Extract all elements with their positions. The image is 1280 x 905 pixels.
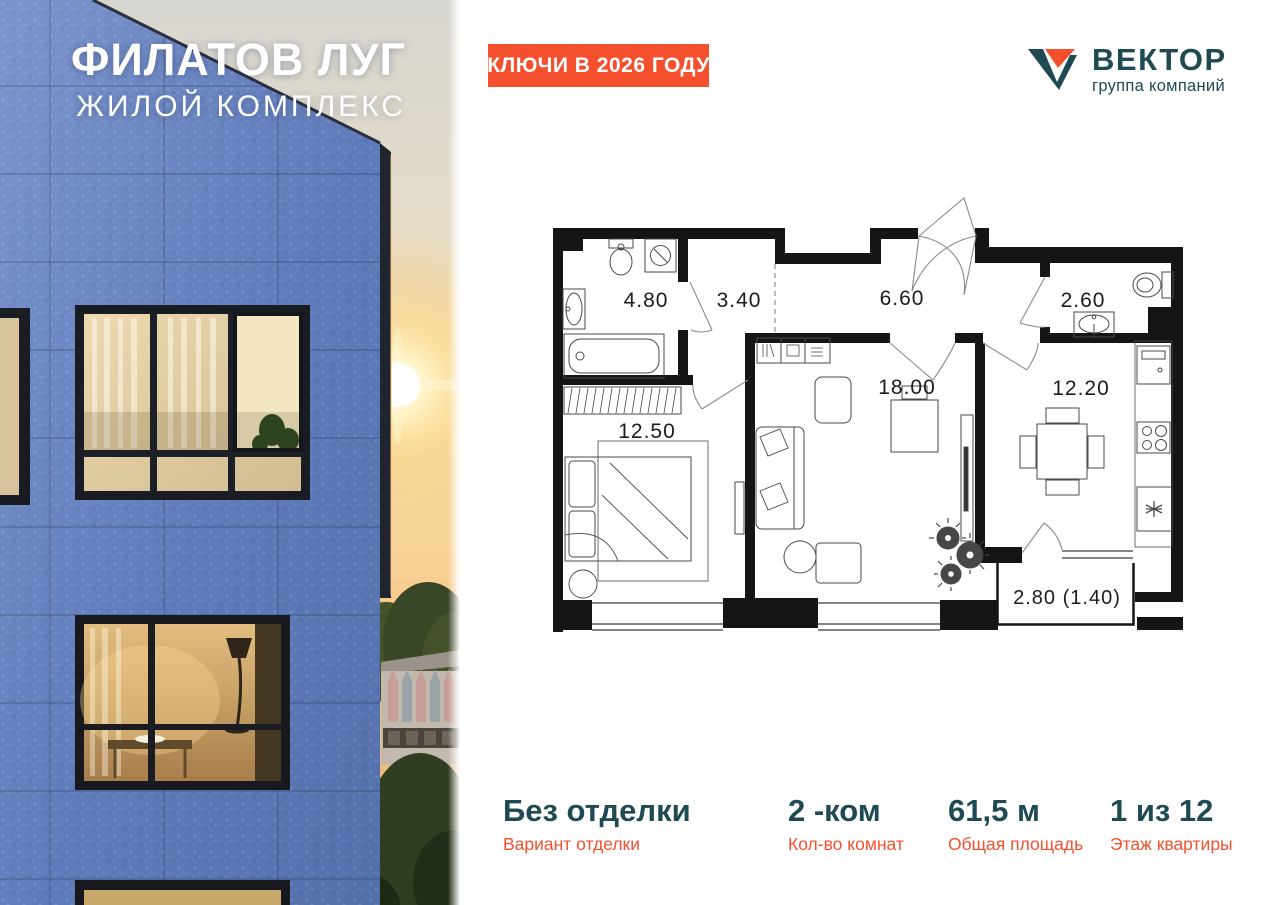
bedside-rug bbox=[569, 570, 597, 598]
complex-subtitle: ЖИЛОЙ КОМПЛЕКС bbox=[0, 90, 406, 124]
coffee-table-icon bbox=[784, 541, 816, 573]
building-photo-art bbox=[0, 0, 460, 905]
living-room-window bbox=[818, 603, 940, 630]
detail-area: 61,5 м Общая площадь bbox=[948, 795, 1083, 855]
detail-finishing: Без отделки Вариант отделки bbox=[503, 795, 691, 855]
room-area-label: 2.60 bbox=[1061, 289, 1106, 312]
rooms-value: 2 -ком bbox=[788, 795, 904, 826]
bed-icon bbox=[565, 457, 691, 561]
logo-company-name: ВЕКТОР bbox=[1092, 44, 1227, 75]
flyer-canvas: ФИЛАТОВ ЛУГ ЖИЛОЙ КОМПЛЕКС КЛЮЧИ В 2026 … bbox=[0, 0, 1280, 905]
bathroom-sink-icon bbox=[563, 289, 585, 329]
room-area-label: 6.60 bbox=[880, 287, 925, 310]
kitchen-sink-icon bbox=[1137, 487, 1172, 531]
logo-tagline: группа компаний bbox=[1092, 77, 1227, 96]
finishing-label: Вариант отделки bbox=[503, 834, 691, 855]
vektor-logo-icon bbox=[1026, 44, 1078, 92]
room-area-label: 4.80 bbox=[624, 289, 669, 312]
room-area-label: 3.40 bbox=[717, 289, 762, 312]
armchair-icon bbox=[816, 543, 861, 583]
room-area-label: 2.80 (1.40) bbox=[1013, 587, 1121, 609]
keys-year-badge: КЛЮЧИ В 2026 ГОДУ bbox=[488, 44, 709, 87]
sofa-icon bbox=[756, 427, 804, 529]
bedroom-window bbox=[592, 603, 723, 630]
building-side-edge bbox=[380, 143, 391, 598]
armchair-top-icon bbox=[815, 377, 851, 423]
area-value: 61,5 м bbox=[948, 795, 1083, 826]
building-photo: ФИЛАТОВ ЛУГ ЖИЛОЙ КОМПЛЕКС bbox=[0, 0, 460, 905]
room-area-label: 12.20 bbox=[1052, 377, 1110, 400]
complex-title: ФИЛАТОВ ЛУГ bbox=[0, 34, 406, 86]
bathtub-icon bbox=[564, 334, 664, 378]
detail-rooms: 2 -ком Кол-во комнат bbox=[788, 795, 904, 855]
wardrobe-icon bbox=[564, 387, 681, 414]
tv-console-icon bbox=[961, 415, 973, 541]
facade-window-upper bbox=[75, 305, 310, 500]
floor-label: Этаж квартиры bbox=[1110, 834, 1233, 855]
finishing-value: Без отделки bbox=[503, 795, 691, 826]
area-label: Общая площадь bbox=[948, 834, 1083, 855]
toilet-icon bbox=[609, 239, 633, 275]
room-area-label: 18.00 bbox=[878, 376, 936, 399]
facade-window-partial-bottom bbox=[75, 880, 290, 905]
entrance-door-icon bbox=[912, 198, 976, 295]
facade-window-partial-left bbox=[0, 308, 30, 505]
facade-window-lower bbox=[75, 615, 290, 790]
room-area-label: 12.50 bbox=[618, 420, 676, 443]
floor-plan: 4.80 3.40 6.60 2.60 12.50 18.00 12.20 2.… bbox=[550, 195, 1190, 645]
balcony-window bbox=[1062, 551, 1133, 558]
detail-floor: 1 из 12 Этаж квартиры bbox=[1110, 795, 1233, 855]
washing-machine-icon bbox=[645, 239, 676, 272]
floor-value: 1 из 12 bbox=[1110, 795, 1233, 826]
wc-toilet-icon bbox=[1133, 272, 1173, 298]
rooms-label: Кол-во комнат bbox=[788, 834, 904, 855]
dining-table-icon bbox=[1020, 408, 1104, 495]
stove-icon bbox=[1137, 422, 1170, 453]
developer-logo: ВЕКТОР группа компаний bbox=[1026, 44, 1227, 96]
bedroom-tv-icon bbox=[735, 482, 744, 534]
fridge-icon bbox=[1137, 346, 1170, 384]
